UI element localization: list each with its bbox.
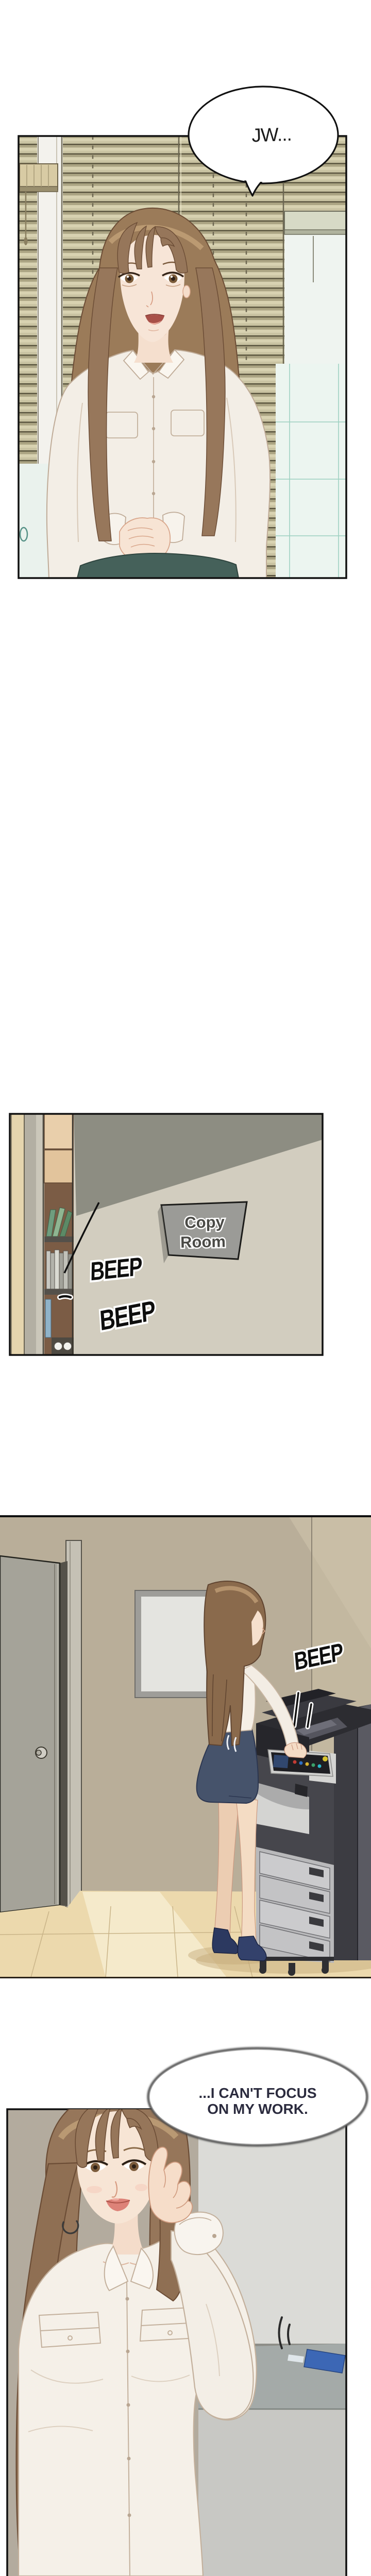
svg-text:BEEP: BEEP — [90, 1251, 142, 1286]
svg-text:Room: Room — [180, 1232, 226, 1251]
svg-text:JW...: JW... — [251, 124, 292, 146]
svg-text:Copy: Copy — [184, 1213, 225, 1231]
svg-text:...I CAN'T FOCUS: ...I CAN'T FOCUS — [198, 2085, 316, 2101]
svg-text:ON MY WORK.: ON MY WORK. — [207, 2101, 308, 2117]
